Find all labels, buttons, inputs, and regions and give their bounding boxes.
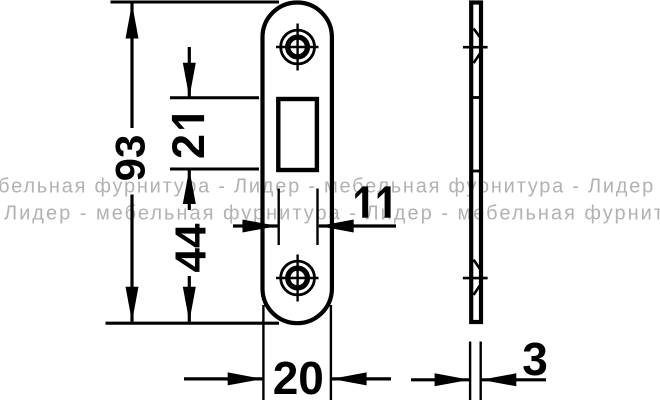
svg-text:3: 3 (522, 333, 548, 385)
svg-text:2: 2 (163, 134, 214, 159)
svg-text:20: 20 (273, 352, 324, 400)
svg-text:44: 44 (167, 223, 216, 272)
svg-text:мебельная фурнитура - Лидер -: мебельная фурнитура - Лидер - мебельная … (0, 176, 655, 198)
svg-text:93: 93 (106, 135, 153, 182)
